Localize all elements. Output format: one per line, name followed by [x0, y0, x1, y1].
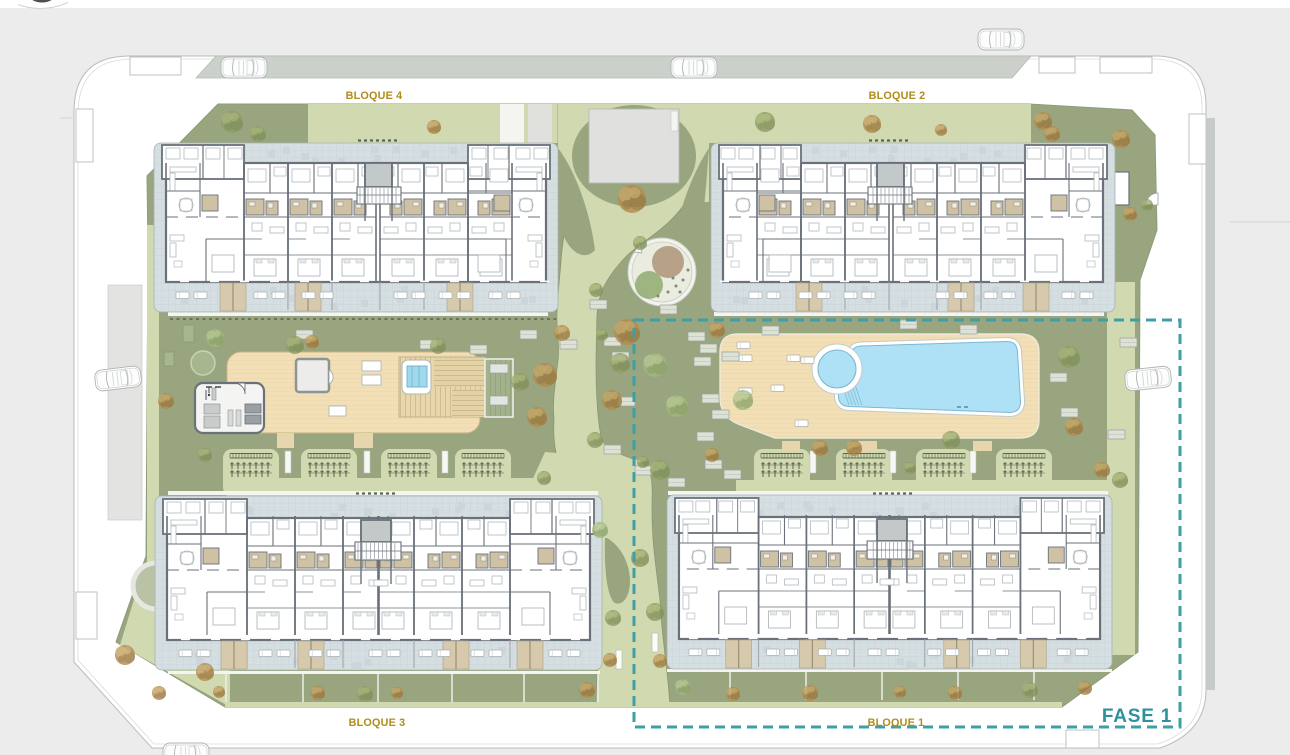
svg-text:BLOQUE 3: BLOQUE 3	[349, 717, 406, 729]
svg-text:BLOQUE 1: BLOQUE 1	[868, 717, 925, 729]
svg-text:FASE 1: FASE 1	[1102, 706, 1172, 727]
svg-text:BLOQUE 4: BLOQUE 4	[346, 90, 403, 102]
svg-text:BLOQUE 2: BLOQUE 2	[869, 90, 926, 102]
